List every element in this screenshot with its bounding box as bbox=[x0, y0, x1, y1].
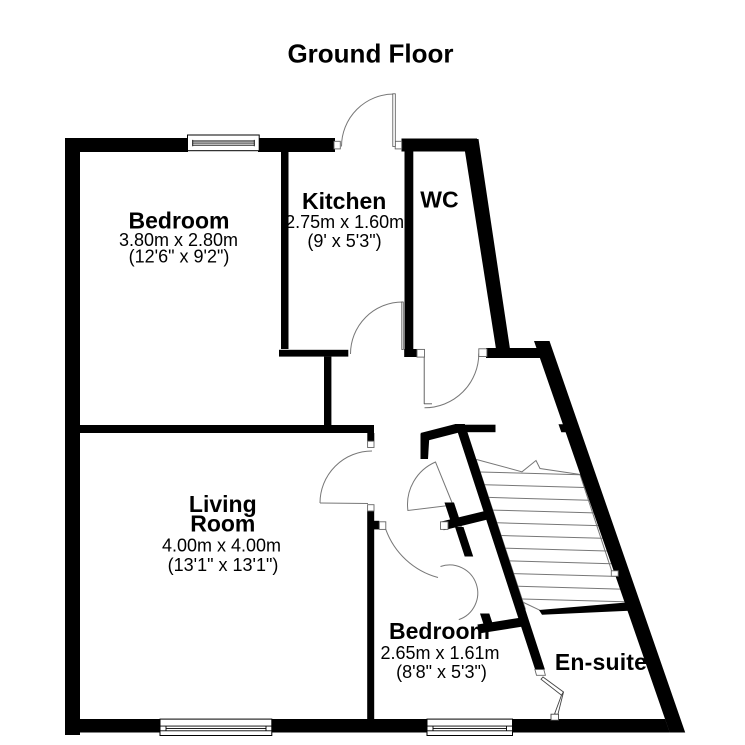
svg-text:2.65m x 1.61m: 2.65m x 1.61m bbox=[380, 643, 499, 663]
svg-text:(8'8" x 5'3"): (8'8" x 5'3") bbox=[396, 662, 487, 682]
svg-text:(12'6" x 9'2"): (12'6" x 9'2") bbox=[129, 246, 230, 266]
svg-text:Ground Floor: Ground Floor bbox=[287, 39, 453, 69]
svg-text:2.75m x 1.60m: 2.75m x 1.60m bbox=[285, 212, 404, 232]
svg-text:Bedroom: Bedroom bbox=[389, 618, 490, 644]
svg-text:WC: WC bbox=[420, 186, 458, 212]
svg-text:(13'1" x 13'1"): (13'1" x 13'1") bbox=[168, 555, 279, 575]
svg-text:4.00m x 4.00m: 4.00m x 4.00m bbox=[162, 535, 281, 555]
svg-text:Room: Room bbox=[190, 511, 255, 537]
svg-text:En-suite: En-suite bbox=[555, 649, 647, 675]
svg-text:Kitchen: Kitchen bbox=[302, 188, 386, 214]
svg-text:(9' x 5'3"): (9' x 5'3") bbox=[307, 231, 381, 251]
